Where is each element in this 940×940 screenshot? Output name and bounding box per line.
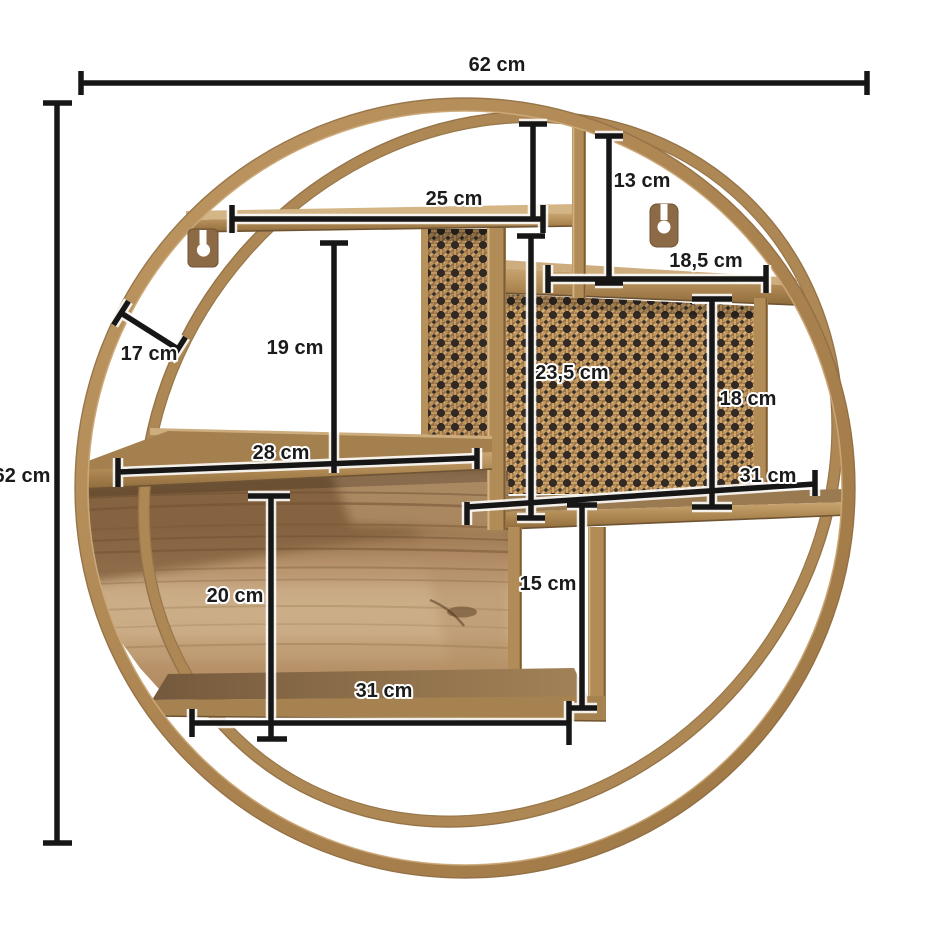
- svg-text:25 cm: 25 cm: [426, 188, 483, 210]
- svg-text:28 cm: 28 cm: [253, 442, 310, 464]
- svg-text:31 cm: 31 cm: [356, 680, 413, 702]
- svg-text:23,5 cm: 23,5 cm: [535, 362, 608, 384]
- svg-text:62 cm: 62 cm: [0, 465, 50, 487]
- svg-text:15 cm: 15 cm: [520, 573, 577, 595]
- svg-text:19 cm: 19 cm: [267, 337, 324, 359]
- svg-text:20 cm: 20 cm: [207, 585, 264, 607]
- svg-text:17 cm: 17 cm: [121, 343, 178, 365]
- svg-text:62 cm: 62 cm: [469, 54, 526, 76]
- svg-text:31 cm: 31 cm: [740, 465, 797, 487]
- svg-text:18,5 cm: 18,5 cm: [669, 250, 742, 272]
- svg-text:13 cm: 13 cm: [614, 170, 671, 192]
- svg-text:18 cm: 18 cm: [720, 388, 777, 410]
